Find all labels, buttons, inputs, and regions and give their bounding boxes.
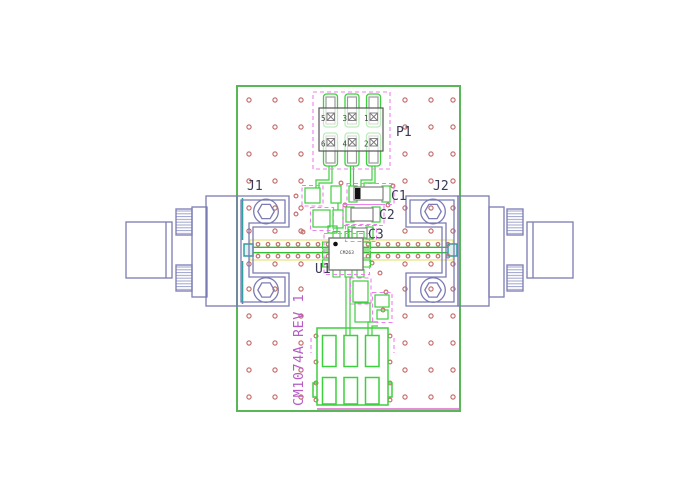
via: [247, 341, 251, 345]
via: [266, 254, 270, 258]
via: [451, 125, 455, 129]
label-p1: P1: [396, 125, 412, 140]
via: [429, 125, 433, 129]
via: [403, 98, 407, 102]
label-j1: J1: [247, 179, 263, 194]
via: [403, 395, 407, 399]
pcb-layout-canvas: 5 3 1 6 4 2: [0, 0, 700, 500]
via: [273, 341, 277, 345]
via: [247, 152, 251, 156]
via: [247, 287, 251, 291]
p1-pin3-number: 3: [342, 114, 347, 123]
pcb-cad-screenshot: 5 3 1 6 4 2: [0, 0, 700, 500]
label-c3: C3: [368, 228, 384, 243]
via: [403, 368, 407, 372]
via: [276, 243, 280, 247]
via: [396, 243, 400, 247]
via: [429, 98, 433, 102]
via: [429, 229, 433, 233]
via: [256, 243, 260, 247]
via: [429, 314, 433, 318]
via: [273, 98, 277, 102]
via: [273, 395, 277, 399]
via: [339, 181, 343, 185]
via: [273, 125, 277, 129]
via: [403, 179, 407, 183]
via: [403, 341, 407, 345]
via: [266, 243, 270, 247]
via: [273, 314, 277, 318]
via: [403, 314, 407, 318]
label-u1: U1: [315, 262, 331, 277]
via: [376, 243, 380, 247]
via: [299, 179, 303, 183]
connector-j2: [406, 196, 573, 306]
via: [294, 194, 298, 198]
p1-pin5-number: 5: [321, 114, 326, 123]
via: [316, 254, 320, 258]
label-c2: C2: [379, 208, 395, 223]
via: [256, 254, 260, 258]
via: [426, 254, 430, 258]
connector-thread: [176, 209, 192, 235]
via: [299, 206, 303, 210]
footprint-pad: [323, 378, 337, 405]
via: [273, 229, 277, 233]
via: [403, 229, 407, 233]
connector-thread: [507, 265, 523, 291]
via: [273, 368, 277, 372]
via: [426, 243, 430, 247]
via: [378, 271, 382, 275]
via: [451, 395, 455, 399]
connector-cable-end: [126, 222, 172, 278]
via: [429, 395, 433, 399]
p1-pin1-number: 1: [364, 114, 369, 123]
label-c1: C1: [391, 189, 407, 204]
via: [429, 206, 433, 210]
connector-thread: [507, 209, 523, 235]
connector-thread: [176, 265, 192, 291]
screw-hex: [258, 204, 274, 218]
footprint-pad: [344, 378, 358, 405]
via: [247, 395, 251, 399]
screw-hex: [258, 283, 274, 297]
header-p1: 5 3 1 6 4 2: [316, 94, 383, 188]
bottom-footprint-array: [313, 328, 392, 405]
via: [386, 254, 390, 258]
connector-body: [458, 196, 489, 306]
via: [451, 152, 455, 156]
via: [396, 254, 400, 258]
via: [299, 152, 303, 156]
via: [299, 125, 303, 129]
cap-polarity-bar: [355, 188, 361, 199]
connector-cable-end: [527, 222, 573, 278]
via: [403, 152, 407, 156]
connector-j1: [126, 196, 289, 306]
via: [247, 98, 251, 102]
via: [299, 98, 303, 102]
via: [247, 206, 251, 210]
pin1-dot: [333, 242, 338, 247]
via: [451, 314, 455, 318]
via: [247, 314, 251, 318]
via: [406, 243, 410, 247]
p1-pin4-number: 4: [342, 140, 347, 149]
connector-body: [206, 196, 237, 306]
via: [273, 152, 277, 156]
via: [386, 243, 390, 247]
label-j2: J2: [433, 179, 449, 194]
via: [306, 254, 310, 258]
via: [429, 262, 433, 266]
via: [429, 287, 433, 291]
via: [436, 254, 440, 258]
chip-marking: CM263: [340, 250, 354, 256]
via: [306, 243, 310, 247]
footprint-pad: [366, 378, 380, 405]
footprint-pad: [366, 336, 380, 367]
via: [376, 254, 380, 258]
via: [429, 368, 433, 372]
board-revision-text: CM1074A REV 1: [291, 294, 307, 406]
via: [451, 98, 455, 102]
via: [273, 262, 277, 266]
via: [247, 125, 251, 129]
via: [416, 243, 420, 247]
via: [286, 243, 290, 247]
via: [429, 341, 433, 345]
via: [299, 287, 303, 291]
via: [436, 243, 440, 247]
via: [286, 254, 290, 258]
via: [273, 179, 277, 183]
footprint-pad: [344, 336, 358, 367]
via: [316, 243, 320, 247]
p1-pin2-number: 2: [364, 140, 369, 149]
via: [403, 262, 407, 266]
via: [429, 152, 433, 156]
via: [406, 254, 410, 258]
via: [294, 212, 298, 216]
below-chip-footprints: [346, 277, 389, 336]
cap-c2: [346, 207, 380, 222]
via: [451, 341, 455, 345]
cap-body: [351, 208, 373, 221]
via: [451, 368, 455, 372]
via: [247, 368, 251, 372]
via: [276, 254, 280, 258]
via: [299, 262, 303, 266]
cap-c1: [349, 186, 390, 202]
via: [416, 254, 420, 258]
via: [451, 179, 455, 183]
via: [296, 254, 300, 258]
p1-pin6-number: 6: [321, 140, 326, 149]
via: [296, 243, 300, 247]
footprint-pad: [323, 336, 337, 367]
